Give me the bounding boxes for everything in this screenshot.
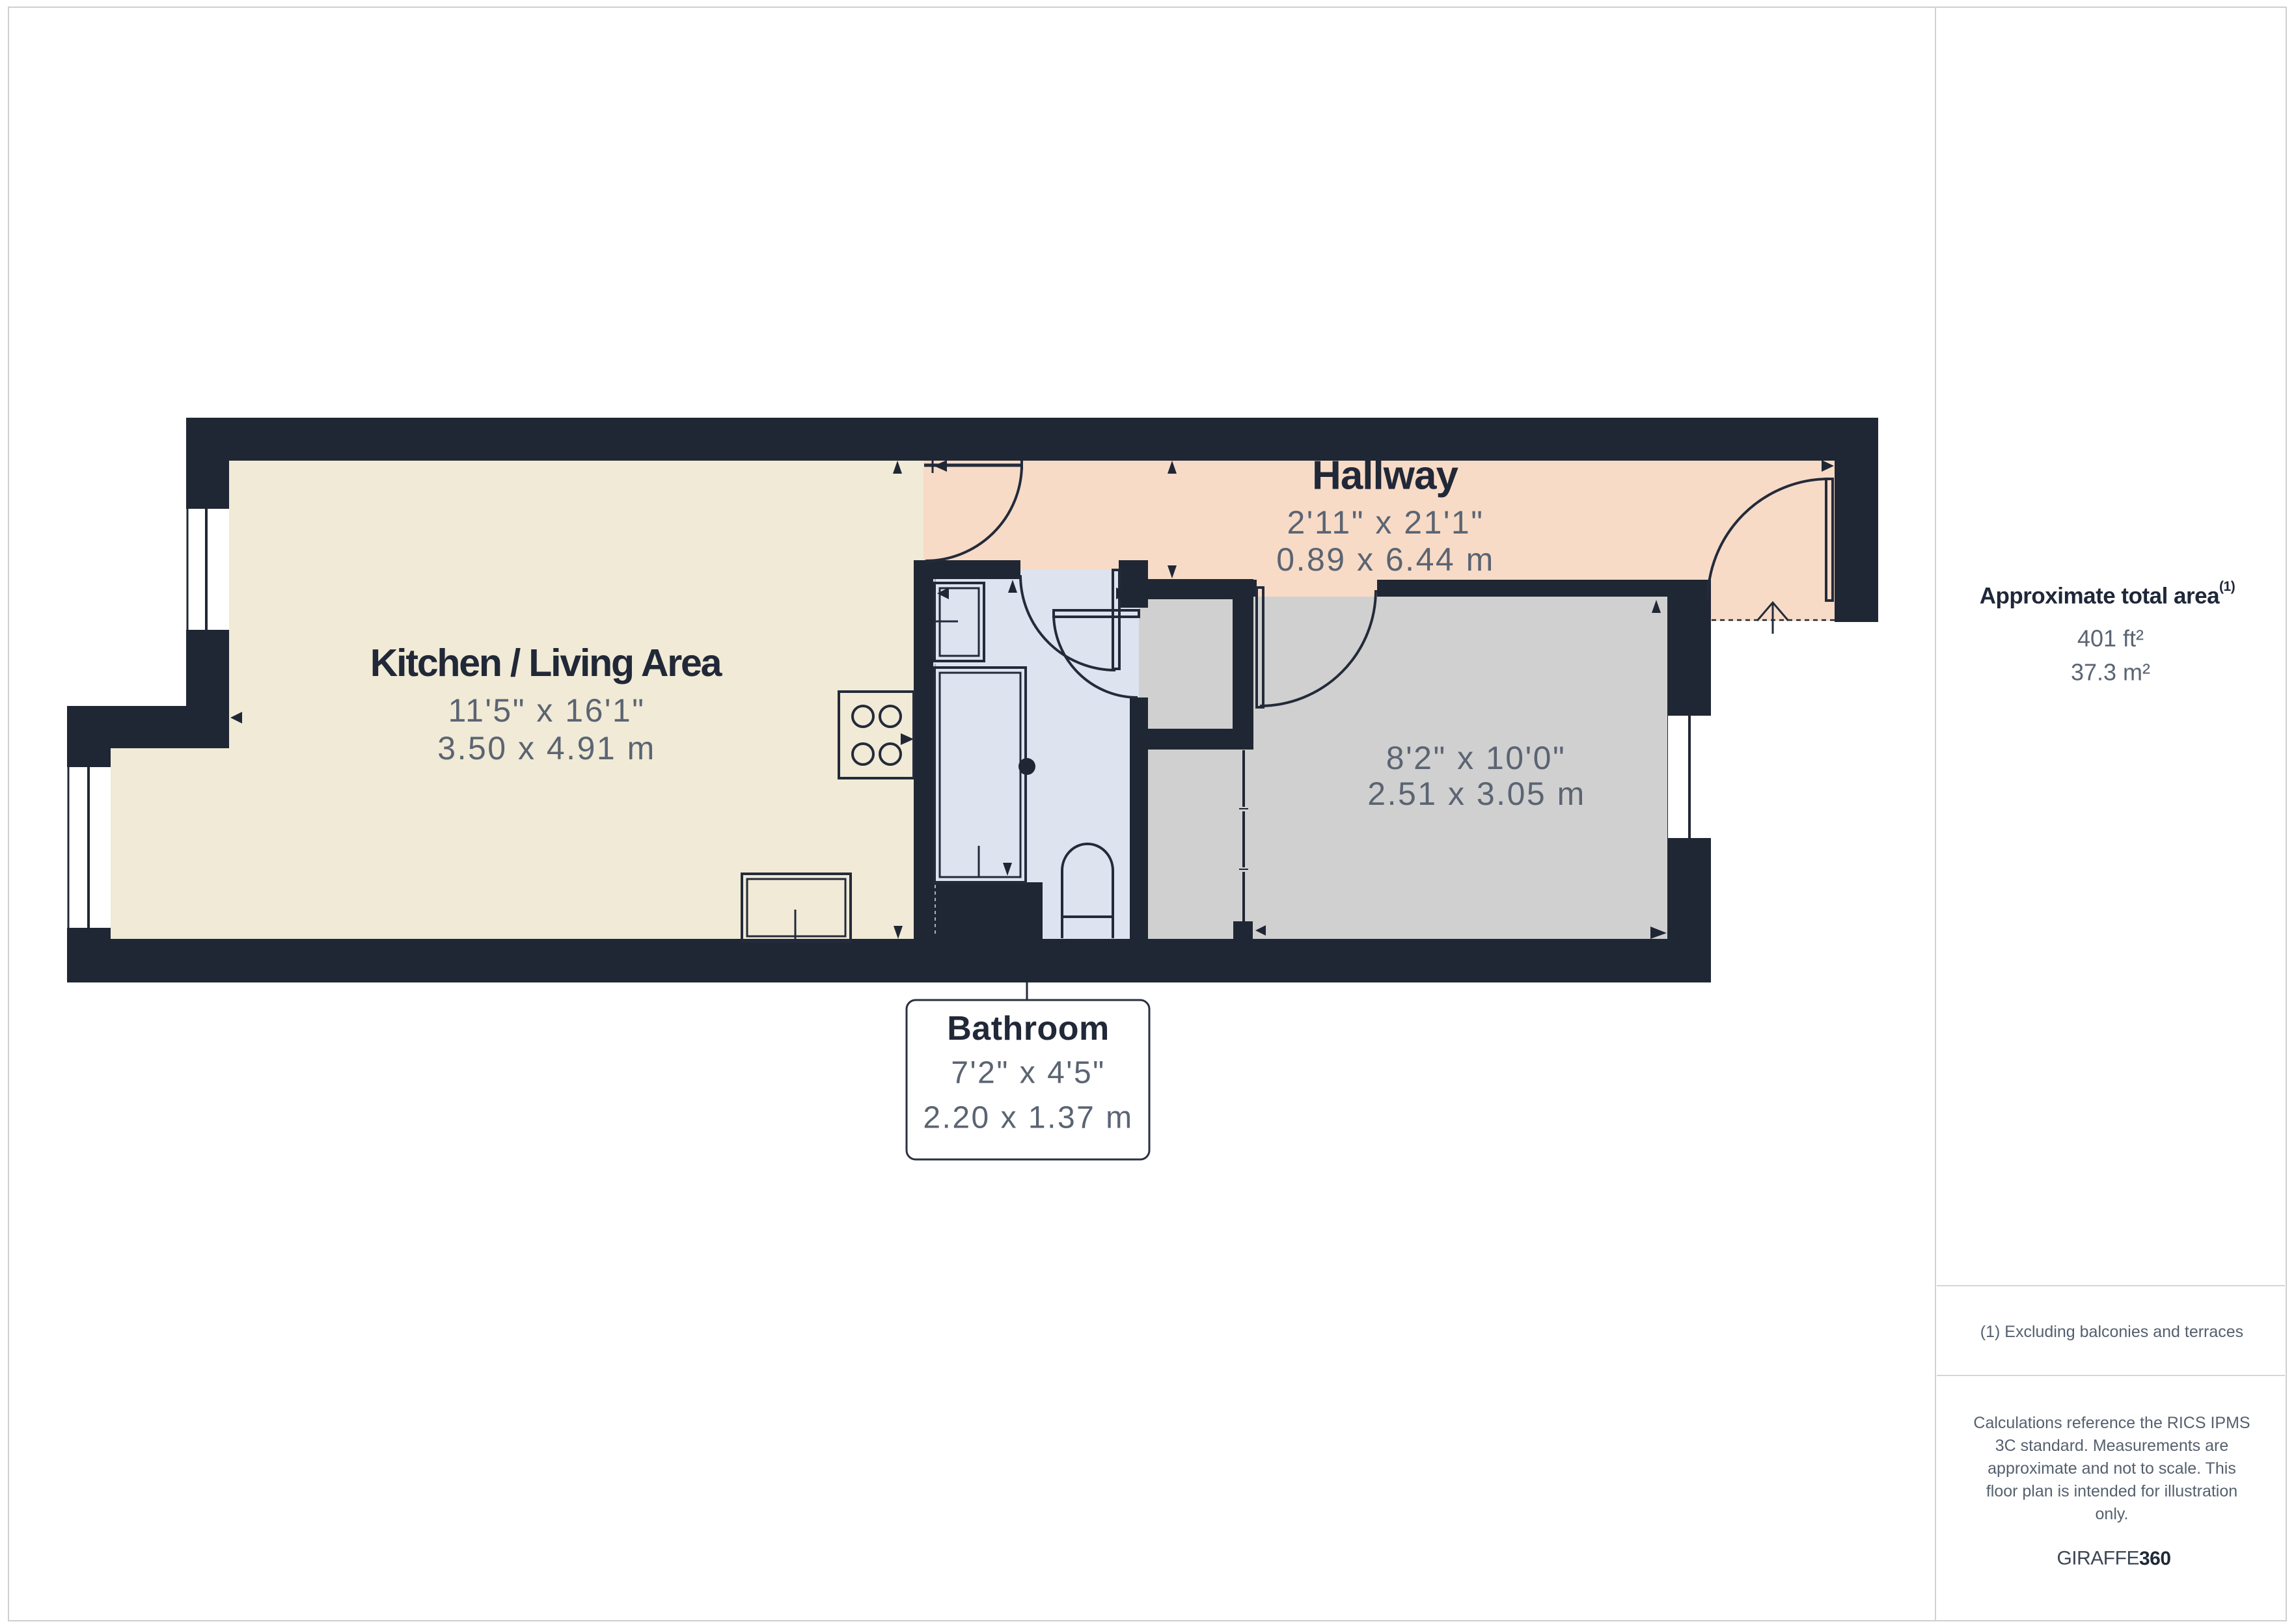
svg-text:GIRAFFE360: GIRAFFE360 — [2057, 1548, 2170, 1569]
svg-text:11'5" x 16'1": 11'5" x 16'1" — [448, 692, 645, 729]
svg-text:2'11" x 21'1": 2'11" x 21'1" — [1287, 504, 1484, 541]
svg-text:(1) Excluding balconies and te: (1) Excluding balconies and terraces — [1980, 1323, 2243, 1341]
svg-text:Hallway: Hallway — [1312, 453, 1458, 498]
svg-text:3C standard. Measurements are: 3C standard. Measurements are — [1995, 1437, 2229, 1455]
svg-text:approximate and not to scale.: approximate and not to scale. This — [1988, 1459, 2236, 1478]
svg-text:Calculations reference the RIC: Calculations reference the RICS IPMS — [1973, 1414, 2250, 1432]
svg-text:3.50 x 4.91 m: 3.50 x 4.91 m — [437, 730, 655, 766]
svg-text:8'2" x 10'0": 8'2" x 10'0" — [1386, 740, 1566, 776]
svg-text:Bathroom: Bathroom — [947, 1010, 1110, 1048]
svg-text:Approximate total area(1): Approximate total area(1) — [1980, 579, 2235, 609]
svg-text:401 ft²: 401 ft² — [2077, 625, 2144, 652]
svg-text:7'2" x 4'5": 7'2" x 4'5" — [951, 1056, 1105, 1090]
svg-text:2.51 x 3.05 m: 2.51 x 3.05 m — [1367, 776, 1585, 812]
svg-text:37.3 m²: 37.3 m² — [2071, 659, 2150, 686]
svg-text:0.89 x 6.44 m: 0.89 x 6.44 m — [1276, 541, 1494, 578]
svg-text:Kitchen / Living Area: Kitchen / Living Area — [370, 642, 723, 684]
svg-text:only.: only. — [2096, 1505, 2129, 1523]
svg-text:2.20 x 1.37 m: 2.20 x 1.37 m — [923, 1101, 1133, 1135]
svg-text:floor plan is intended for ill: floor plan is intended for illustration — [1986, 1482, 2237, 1500]
